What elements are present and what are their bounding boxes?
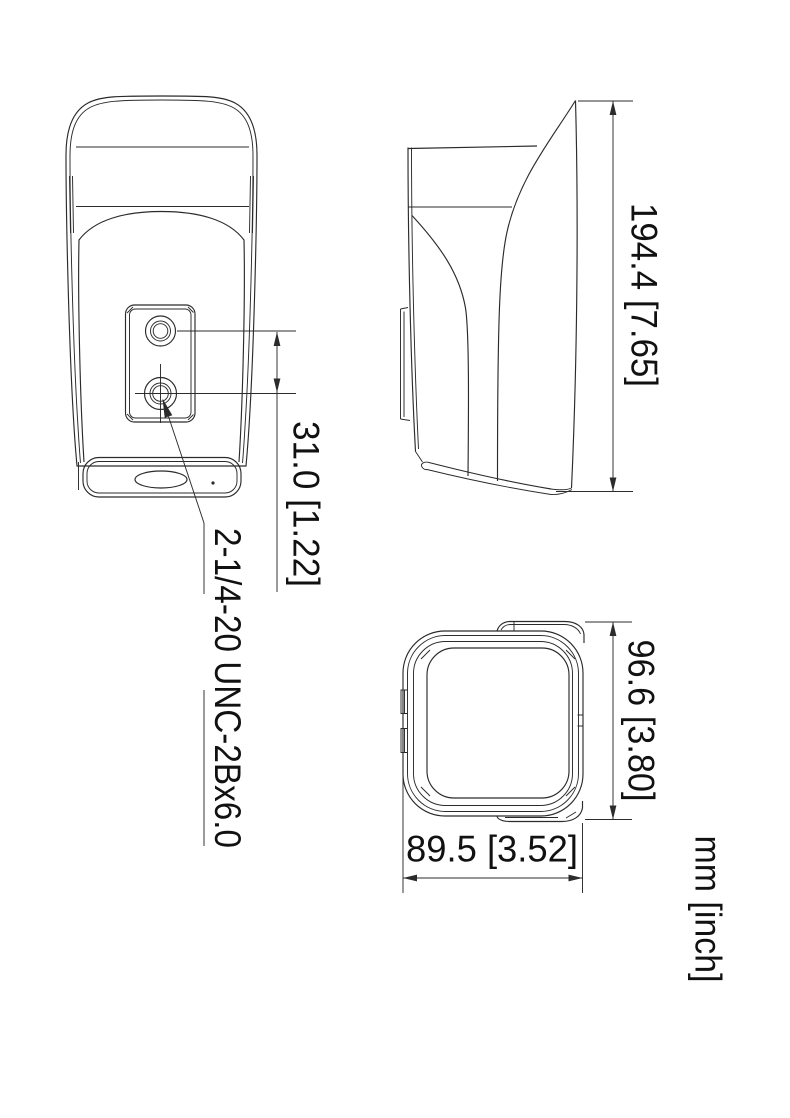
width-dimension: 89.5 [3.52] xyxy=(403,757,583,893)
units-label: mm [inch] xyxy=(688,836,729,983)
housing-outline-3 xyxy=(414,642,573,806)
side-seam-right xyxy=(250,176,254,233)
corner-seam-ticks xyxy=(421,650,575,796)
mount-hole-top xyxy=(146,316,176,346)
bottom-cap-side xyxy=(416,452,573,495)
bottom-cap xyxy=(79,458,242,498)
top-band-lines xyxy=(76,147,249,207)
body-back-panel xyxy=(79,212,245,463)
body-silhouette-curve xyxy=(412,216,468,477)
mount-base-top-line xyxy=(409,146,538,149)
hole-spacing-label: 31.0 [1.22] xyxy=(286,421,327,587)
leader-line xyxy=(169,417,205,524)
top-view xyxy=(401,622,584,822)
arrowhead-right xyxy=(569,875,583,882)
hood-silhouette-curve xyxy=(498,101,576,482)
housing-outline-1 xyxy=(403,631,583,816)
side-view xyxy=(401,101,578,495)
camera-dimension-drawing: 31.0 [1.22] 2-1/4-20 UNC-2Bx6.0 xyxy=(0,0,790,1118)
shell-outline-outer xyxy=(66,96,257,466)
hood-tab-top xyxy=(497,622,584,644)
left-side-bumps xyxy=(401,690,408,753)
arrowhead-up xyxy=(274,332,281,346)
width-label: 89.5 [3.52] xyxy=(406,829,578,870)
side-seam-left xyxy=(70,176,74,233)
housing-outline-2 xyxy=(408,636,579,812)
height-dimension: 194.4 [7.65] xyxy=(556,101,665,492)
arrowhead-down xyxy=(274,379,281,393)
front-edge xyxy=(572,101,578,489)
arrowhead-up xyxy=(610,622,617,636)
edge-to-cap-join xyxy=(416,452,423,463)
back-edge-inner xyxy=(412,148,419,450)
arrowhead-left xyxy=(403,875,417,882)
wall-bracket-tab xyxy=(401,308,411,421)
depth-dimension: 96.6 [3.80] xyxy=(585,622,662,820)
arrowhead-down xyxy=(610,478,617,492)
rear-view xyxy=(66,96,257,497)
height-label: 194.4 [7.65] xyxy=(624,203,665,387)
arrowhead-up xyxy=(610,101,617,115)
drawing-page: 31.0 [1.22] 2-1/4-20 UNC-2Bx6.0 xyxy=(0,0,790,1118)
cap-dot xyxy=(211,481,214,484)
arrowhead-down xyxy=(610,806,617,820)
depth-label: 96.6 [3.80] xyxy=(621,640,662,802)
housing-outline-4 xyxy=(427,648,569,798)
shell-outline-inner xyxy=(70,100,253,463)
thread-callout-label: 2-1/4-20 UNC-2Bx6.0 xyxy=(207,528,248,848)
cap-oval xyxy=(135,471,187,488)
